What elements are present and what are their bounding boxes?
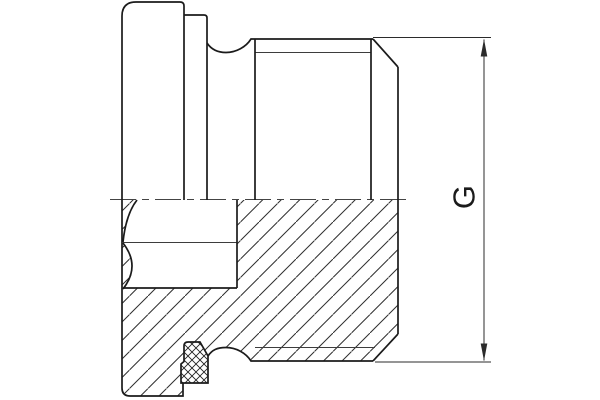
technical-drawing-page: G	[0, 0, 600, 400]
dimension-label-g: G	[447, 185, 482, 209]
screw-plug-section-drawing: G	[0, 0, 600, 400]
